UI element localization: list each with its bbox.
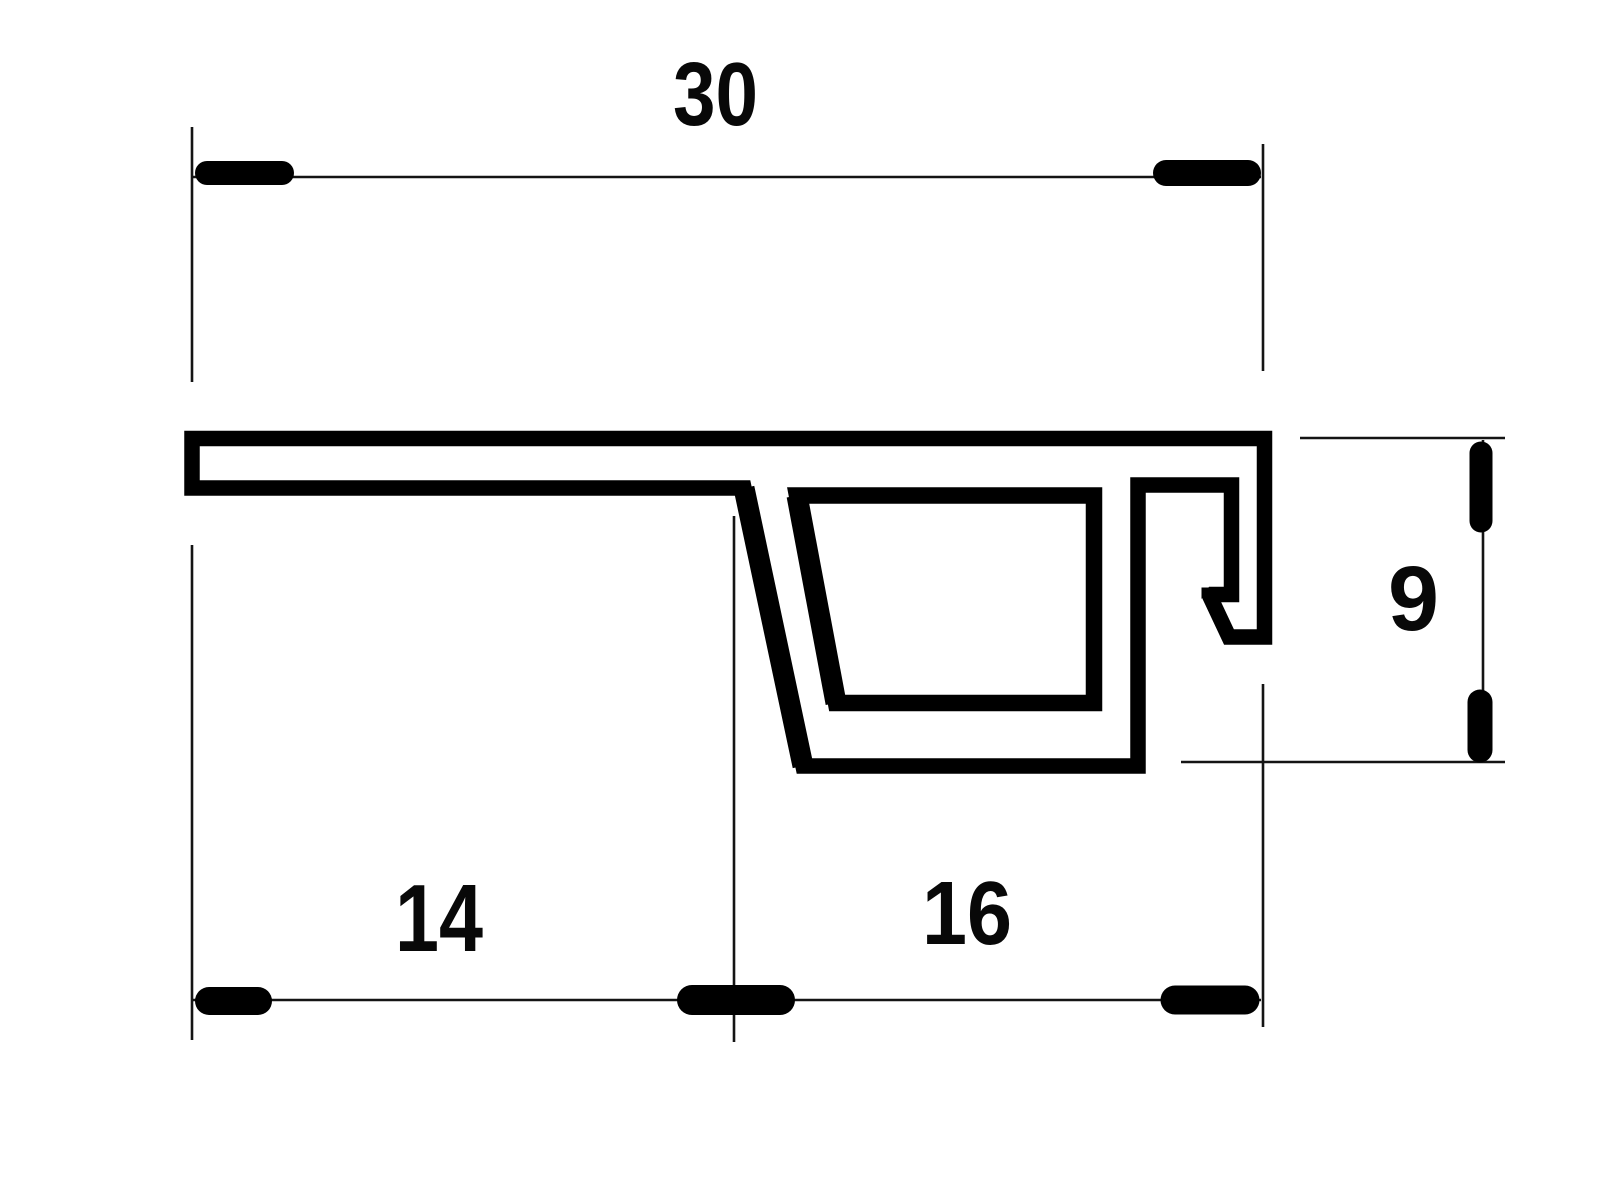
svg-text:14: 14 <box>395 865 483 972</box>
svg-text:16: 16 <box>922 864 1012 964</box>
svg-text:30: 30 <box>673 45 758 145</box>
svg-text:9: 9 <box>1388 548 1439 650</box>
